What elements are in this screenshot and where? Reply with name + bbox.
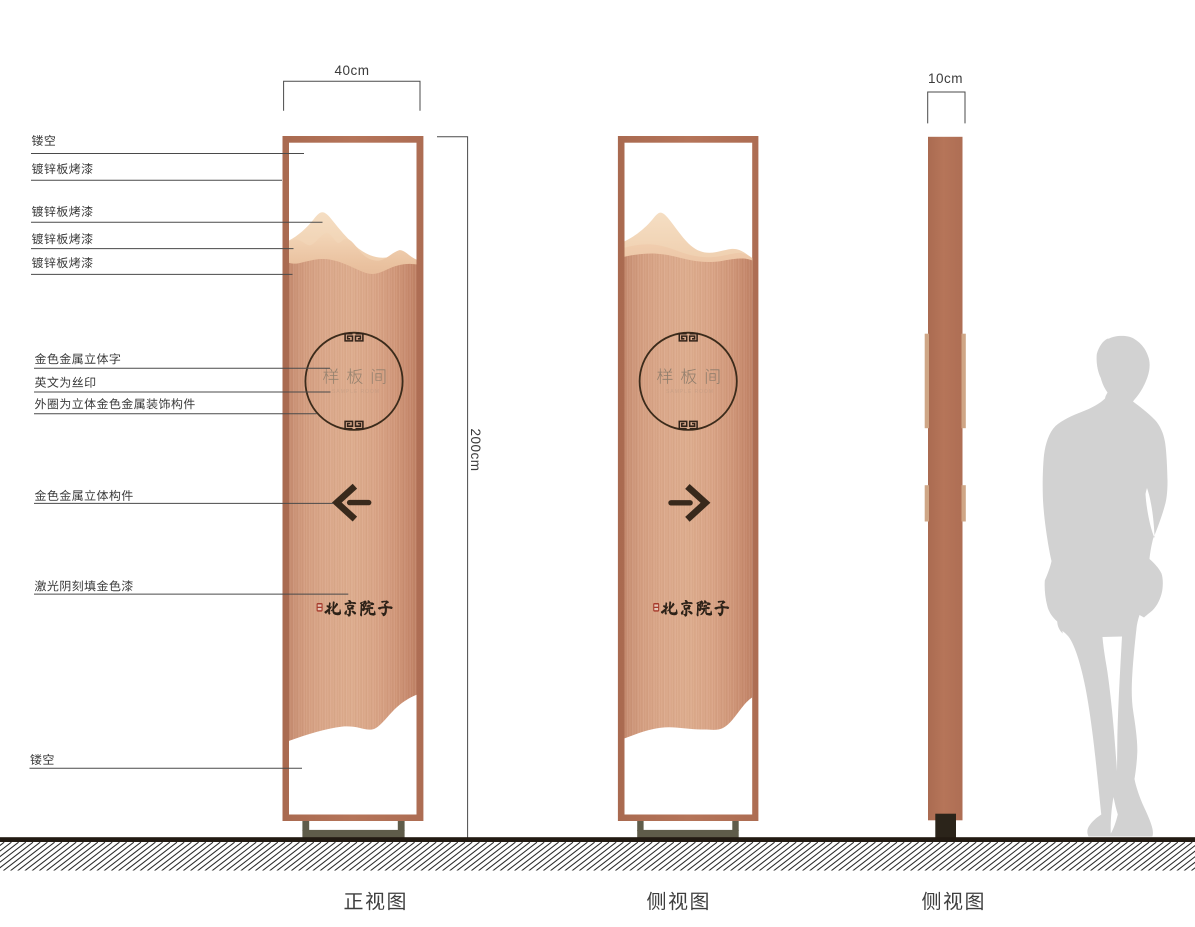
svg-text:SAMPLE ROOM: SAMPLE ROOM <box>332 389 380 395</box>
svg-text:SAMPLE ROOM: SAMPLE ROOM <box>666 389 714 395</box>
svg-text:10cm: 10cm <box>928 71 963 86</box>
svg-text:40cm: 40cm <box>334 63 369 78</box>
svg-text:200cm: 200cm <box>468 428 483 471</box>
